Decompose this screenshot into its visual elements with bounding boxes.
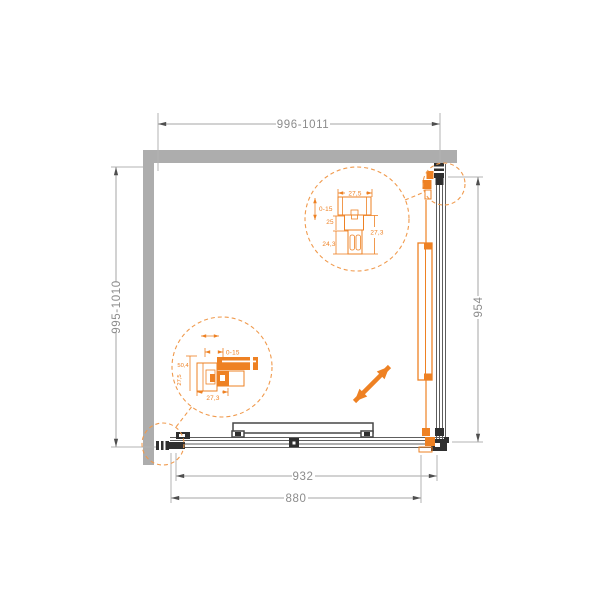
wall-profile-top-right	[434, 163, 444, 185]
corner-block-slot	[435, 443, 440, 447]
bottom-sliding-door	[232, 423, 373, 447]
door-end-bracket-left-pad	[235, 432, 241, 436]
wall-left	[143, 150, 154, 465]
callout-connector	[176, 407, 192, 427]
door-end-bracket-right-pad	[364, 432, 370, 436]
slide-direction-arrow	[355, 367, 390, 402]
detail-label-adjustment: 0-15	[226, 350, 240, 357]
detail-label-profile-width: 27,3	[206, 395, 219, 402]
dimension-label-right: 954	[473, 297, 485, 318]
detail-label-adjustment: 0-15	[319, 206, 333, 213]
door-glass-panel	[233, 423, 373, 433]
dimension-right-panel: 954	[448, 177, 485, 442]
profile-hatch	[164, 441, 166, 450]
roller	[423, 180, 432, 189]
profile-clamp	[169, 442, 185, 449]
door-handle-knob-center	[293, 442, 296, 445]
detail-label-profile-height: 50,4	[177, 363, 189, 369]
right-sliding-door-orange	[418, 171, 435, 452]
callout-connector	[405, 192, 425, 200]
dimension-label-880: 880	[286, 493, 307, 505]
profile-hatch	[159, 441, 161, 450]
wall-profile-body	[434, 163, 444, 178]
right-side-panel-tracks	[437, 164, 446, 450]
corner-block	[435, 428, 444, 436]
detail-profile-section	[197, 357, 258, 391]
bottom-side-panel-tracks	[170, 438, 447, 448]
door-end-cap-bottom	[424, 374, 432, 380]
dimension-label-932: 932	[293, 471, 314, 483]
roller	[427, 171, 434, 179]
profile-hatch	[434, 167, 444, 169]
wall-top	[143, 150, 457, 163]
wall-profile-body	[156, 441, 169, 450]
dimension-label-left: 995-1010	[111, 280, 123, 333]
detail-profile-section	[333, 197, 378, 254]
roller	[425, 437, 435, 446]
detail-label-offset: 25	[326, 219, 334, 226]
detail-label-channel-depth: 24,3	[322, 241, 335, 248]
detail-label-profile-depth: 27,3	[370, 230, 383, 237]
walls	[143, 150, 457, 465]
dimension-label-top: 996-1011	[277, 119, 330, 131]
technical-drawing-page: 996-1011 995-1010 954 932 880	[0, 0, 600, 600]
shower-enclosure-plan-svg: 996-1011 995-1010 954 932 880	[0, 0, 600, 600]
dimension-bottom-932: 932	[176, 453, 437, 483]
profile-hatch	[434, 171, 444, 173]
roller	[422, 428, 430, 436]
profile-clamp	[436, 178, 444, 185]
detail-label-profile-inner: 27,5	[177, 374, 183, 385]
door-end-cap-top	[424, 244, 432, 250]
detail-label-profile-width: 27,5	[348, 190, 361, 197]
corner-block	[444, 437, 449, 443]
roller-assembly-top	[423, 171, 434, 199]
